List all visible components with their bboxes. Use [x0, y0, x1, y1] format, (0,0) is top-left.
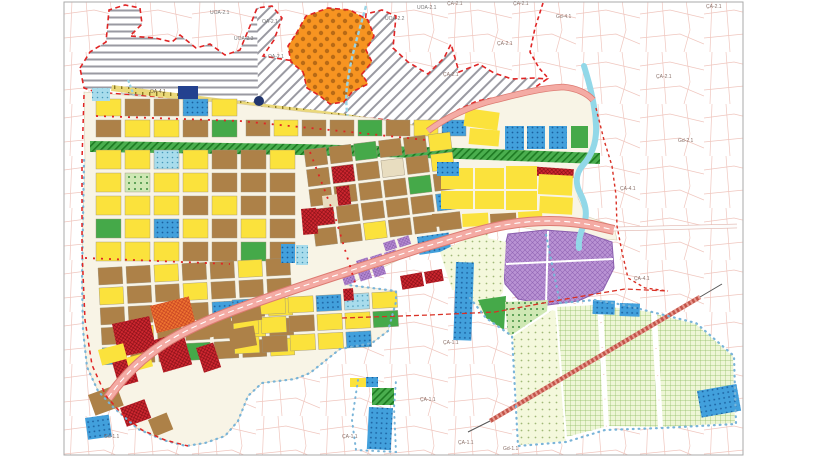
- parcel: [155, 284, 180, 302]
- parcel: [381, 158, 405, 178]
- parcel: [183, 99, 208, 116]
- parcel: [361, 201, 385, 221]
- east-yellow-2: [475, 168, 504, 189]
- parcel: [96, 173, 121, 192]
- parcel: [96, 99, 121, 116]
- parcel: [183, 150, 208, 169]
- red-parcel-center: [336, 185, 351, 205]
- parcel: [125, 150, 150, 169]
- parcel: [183, 173, 208, 192]
- parcel: [358, 120, 382, 136]
- parcel: [125, 196, 150, 215]
- parcel: [270, 219, 295, 238]
- parcel: [359, 181, 383, 201]
- zone-label: ÇA-1.1: [458, 440, 474, 446]
- parcel: [331, 164, 355, 184]
- zone-label: Gd-1.1: [503, 446, 519, 452]
- parcel: [212, 173, 237, 192]
- zone-label: ÇA-1.1: [420, 397, 436, 403]
- parcel: [329, 144, 353, 164]
- parcel: [183, 196, 208, 215]
- parcel: [270, 196, 295, 215]
- east-yellow-6: [475, 191, 504, 209]
- parcel: [388, 218, 412, 238]
- pond: [254, 96, 264, 106]
- zone-label: OA-2.1: [262, 19, 278, 25]
- parcel: [345, 312, 371, 329]
- market-red-parcel: [301, 208, 318, 235]
- parcel: [288, 296, 314, 313]
- parcel: [241, 242, 266, 261]
- parcel: [154, 242, 179, 261]
- parcel: [154, 99, 179, 116]
- zone-label: UOA-2.2: [385, 16, 405, 22]
- parcel: [238, 259, 263, 277]
- east-yellow-5: [441, 191, 473, 209]
- parcel: [125, 120, 150, 137]
- parcel: [125, 219, 150, 238]
- zone-label: ÇA-1.1: [443, 340, 459, 346]
- zone-label: UOA-2.1: [417, 5, 437, 11]
- school-parcel-1: [505, 126, 524, 150]
- parcel: [304, 147, 328, 167]
- parcel: [356, 161, 380, 181]
- parcel: [241, 219, 266, 238]
- zoning-map: UOA-2.1OA-2.1UOA-2.3OA-2.1UOA-2.2UOA-2.1…: [0, 0, 820, 461]
- parcel: [411, 195, 435, 215]
- parcel: [383, 178, 407, 198]
- parcel: [378, 138, 402, 158]
- parcel: [306, 167, 330, 187]
- parcel: [212, 150, 237, 169]
- zone-label: OA-2.1: [268, 54, 284, 60]
- parcel: [154, 219, 179, 238]
- zone-label: ÇA-2.1: [656, 74, 672, 80]
- parcel: [96, 196, 121, 215]
- zone-label: ÇA-2.1: [443, 72, 459, 78]
- zone-label: Gd-4.1: [556, 14, 572, 20]
- zone-label: UOA-2.3: [234, 36, 254, 42]
- parcel: [96, 219, 121, 238]
- zone-label: Gd-2.1: [678, 138, 694, 144]
- parcel: [318, 332, 344, 349]
- parcel: [239, 279, 264, 297]
- blue-parcel-center: [281, 244, 295, 263]
- parcel: [212, 196, 237, 215]
- red-block-s3: [343, 288, 354, 301]
- parcel: [126, 265, 151, 283]
- zone-label: ÇA-1.1: [342, 434, 358, 440]
- parcel: [354, 141, 378, 161]
- parcel: [154, 120, 179, 137]
- blue-dotted-tall: [453, 262, 474, 341]
- parcel: [154, 264, 179, 282]
- parcel: [241, 196, 266, 215]
- east-yellow-8: [539, 196, 573, 215]
- parcel: [183, 242, 208, 261]
- zone-label: ÇA-2.1: [706, 4, 722, 10]
- teal-parcel-nw: [92, 88, 110, 101]
- parcel: [125, 242, 150, 261]
- west-grid-upper: [96, 150, 295, 261]
- parcel: [373, 310, 399, 327]
- parcel: [262, 335, 288, 352]
- zone-label: Gd-1.1: [104, 434, 120, 440]
- park-parcel-ne: [571, 126, 588, 148]
- parcel: [154, 196, 179, 215]
- map-canvas: UOA-2.1OA-2.1UOA-2.3OA-2.1UOA-2.2UOA-2.1…: [0, 0, 820, 461]
- zone-label: ÇA-4.1: [634, 276, 650, 282]
- parcel: [127, 285, 152, 303]
- parcel: [125, 99, 150, 116]
- zone-label: OA-4.1: [150, 89, 166, 95]
- lightblue-parcel-center: [296, 245, 308, 265]
- east-yellow-4: [538, 174, 573, 196]
- parcel: [339, 224, 363, 244]
- parcel: [336, 204, 360, 224]
- parcel: [372, 291, 398, 308]
- east-blue: [437, 162, 459, 176]
- parcel: [289, 315, 315, 332]
- parcel: [212, 242, 237, 261]
- parcel: [316, 294, 342, 311]
- tail-bluedot-s: [367, 407, 393, 450]
- parcel: [212, 120, 237, 137]
- parcel: [96, 120, 121, 137]
- zone-label: ÇA-4.1: [620, 186, 636, 192]
- parcel: [408, 175, 432, 195]
- east-yellow-3: [506, 166, 537, 189]
- parcel: [270, 173, 295, 192]
- navy-facility: [178, 86, 198, 99]
- parcel: [270, 150, 295, 169]
- school-parcel-2: [527, 126, 545, 149]
- parcel: [290, 334, 316, 351]
- parcel: [98, 267, 123, 285]
- ag-grid-2: [602, 305, 659, 428]
- parcel: [406, 155, 430, 175]
- parcel: [241, 173, 266, 192]
- parcel: [317, 313, 343, 330]
- parcel: [182, 262, 207, 280]
- parcel: [241, 150, 266, 169]
- parcel: [125, 173, 150, 192]
- parcel: [99, 287, 124, 305]
- parcel: [330, 120, 354, 136]
- zone-label: ÇA-2.1: [497, 41, 513, 47]
- hwy-north-row-1: [432, 213, 461, 227]
- parcel: [428, 132, 452, 152]
- tail-green-s: [372, 388, 394, 405]
- school-parcel-3: [549, 126, 567, 149]
- parcel: [386, 198, 410, 218]
- parcel: [212, 219, 237, 238]
- east-yellow-7: [506, 191, 537, 210]
- parcel: [363, 221, 387, 241]
- parcel: [183, 120, 208, 137]
- parcel: [154, 150, 179, 169]
- zone-label: UOA-2.1: [210, 10, 230, 16]
- parcel: [274, 120, 298, 136]
- parcel: [96, 150, 121, 169]
- parcel: [96, 242, 121, 261]
- yellow-wedge-2: [469, 128, 500, 147]
- map-layers: UOA-2.1OA-2.1UOA-2.3OA-2.1UOA-2.2UOA-2.1…: [64, 1, 743, 455]
- parcel: [183, 219, 208, 238]
- parcel: [261, 316, 287, 333]
- parcel: [212, 99, 237, 116]
- parcel: [154, 173, 179, 192]
- parcel: [211, 281, 236, 299]
- parcel: [346, 331, 372, 348]
- parcel: [386, 120, 410, 136]
- tail-blue-s: [366, 377, 378, 387]
- parcel: [302, 120, 326, 136]
